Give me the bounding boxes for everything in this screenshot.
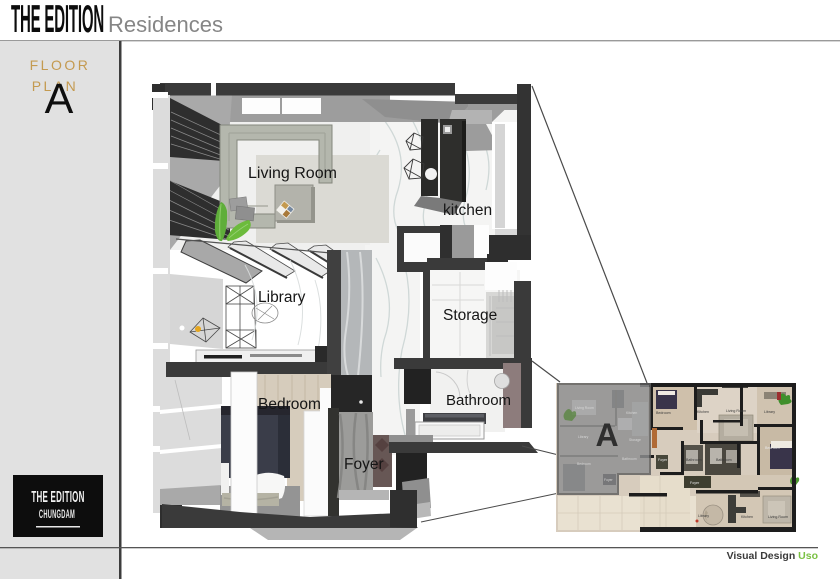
svg-text:Bedroom: Bedroom [656, 411, 671, 415]
svg-text:A: A [45, 75, 74, 123]
svg-text:Library: Library [764, 410, 775, 414]
svg-text:Foyer: Foyer [604, 478, 614, 482]
svg-text:Library: Library [578, 435, 589, 439]
svg-text:Library: Library [258, 289, 306, 306]
svg-text:Kitchen: Kitchen [697, 410, 709, 414]
svg-text:A: A [595, 417, 618, 453]
svg-text:Bathroom: Bathroom [622, 457, 637, 461]
svg-text:Living Room: Living Room [248, 165, 337, 182]
svg-text:Storage: Storage [443, 307, 497, 324]
svg-text:CHUNGDAM: CHUNGDAM [39, 508, 75, 521]
svg-text:Storage: Storage [629, 438, 641, 442]
svg-text:Kitchen: Kitchen [741, 515, 753, 519]
svg-text:Bedroom: Bedroom [577, 462, 591, 466]
svg-text:Bathroom: Bathroom [446, 392, 511, 409]
svg-text:Living Room: Living Room [575, 406, 594, 410]
svg-text:Visual Design Uso: Visual Design Uso [727, 550, 818, 562]
svg-text:FLOOR: FLOOR [30, 57, 91, 73]
svg-text:THE EDITION: THE EDITION [11, 0, 104, 41]
svg-text:Kitchen: Kitchen [626, 411, 637, 415]
svg-text:Living Room: Living Room [768, 515, 788, 519]
svg-text:Bedroom: Bedroom [765, 446, 780, 450]
svg-text:kitchen: kitchen [443, 202, 492, 219]
svg-text:Foyer: Foyer [344, 456, 384, 473]
svg-text:THE EDITION: THE EDITION [31, 488, 84, 506]
svg-text:Foyer: Foyer [658, 458, 668, 462]
svg-text:Living Room: Living Room [726, 409, 746, 413]
svg-text:Bathroom: Bathroom [686, 458, 702, 462]
svg-text:Bedroom: Bedroom [258, 396, 321, 413]
svg-text:Library: Library [698, 514, 709, 518]
svg-text:Foyer: Foyer [690, 481, 700, 485]
svg-text:Residences: Residences [108, 12, 223, 37]
svg-text:Bathroom: Bathroom [716, 458, 732, 462]
